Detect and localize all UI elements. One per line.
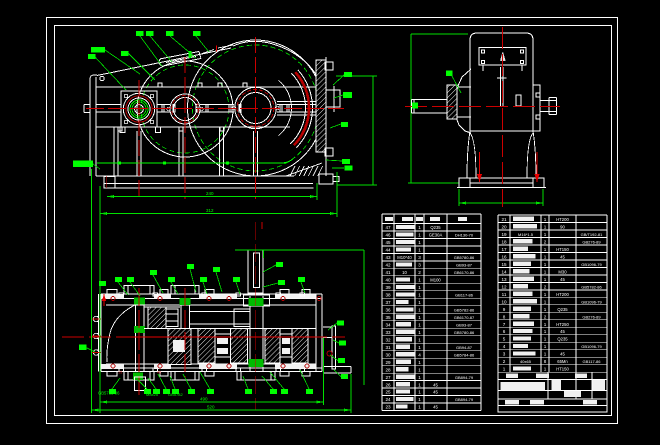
svg-text:45: 45 [560,277,565,282]
svg-text:4: 4 [418,352,421,357]
svg-text:GB5783-86: GB5783-86 [98,391,120,396]
svg-text:1: 1 [503,367,506,372]
svg-text:GB1096-79: GB1096-79 [581,299,602,304]
svg-text:3: 3 [418,263,421,268]
svg-text:45: 45 [560,254,565,259]
svg-text:1: 1 [418,382,421,387]
svg-text:25: 25 [385,390,391,395]
svg-text:HT200: HT200 [556,217,569,222]
svg-text:46: 46 [385,233,391,238]
svg-text:3: 3 [503,352,506,357]
svg-text:GB1096-79: GB1096-79 [581,262,602,267]
svg-text:GB5780-86: GB5780-86 [454,330,475,335]
svg-text:GB894-79: GB894-79 [455,397,474,402]
svg-text:45: 45 [433,390,438,395]
svg-text:GE30A: GE30A [429,233,443,238]
svg-text:10: 10 [501,299,507,304]
svg-text:1: 1 [544,247,547,252]
svg-text:GB5782-86: GB5782-86 [581,284,602,289]
svg-text:14: 14 [501,269,507,274]
svg-text:15: 15 [501,262,507,267]
svg-text:1: 1 [418,397,421,402]
svg-text:1: 1 [418,315,421,320]
svg-text:1: 1 [544,337,547,342]
svg-text:10: 10 [402,270,407,275]
svg-text:HT200: HT200 [556,292,569,297]
svg-text:7: 7 [503,322,506,327]
svg-text:HT150: HT150 [556,367,569,372]
svg-text:1: 1 [418,360,421,365]
svg-text:GB117-86: GB117-86 [583,359,602,364]
svg-text:45: 45 [560,329,565,334]
svg-text:42: 42 [385,263,391,268]
svg-text:30: 30 [385,352,391,357]
svg-text:490: 490 [200,397,208,402]
svg-text:1: 1 [544,217,547,222]
svg-text:36: 36 [385,307,391,312]
svg-text:18: 18 [501,239,507,244]
svg-text:17: 17 [501,247,507,252]
svg-text:1: 1 [418,322,421,327]
svg-text:HT150: HT150 [556,247,569,252]
svg-text:240: 240 [206,191,214,196]
svg-text:1: 1 [418,337,421,342]
svg-text:8: 8 [544,359,547,364]
svg-text:M16*1.5: M16*1.5 [518,232,534,237]
svg-text:13: 13 [501,277,507,282]
svg-text:GB5782: GB5782 [168,392,183,397]
svg-text:44: 44 [385,248,391,253]
svg-text:520: 520 [207,405,215,410]
svg-text:43: 43 [385,255,391,260]
svg-text:1: 1 [544,254,547,259]
svg-text:23: 23 [385,405,391,410]
svg-text:40x65: 40x65 [520,359,532,364]
svg-text:1: 1 [418,390,421,395]
svg-text:GB94-87: GB94-87 [456,345,473,350]
svg-text:2: 2 [544,284,547,289]
svg-text:2: 2 [418,270,421,275]
svg-text:GB1096-79: GB1096-79 [581,344,602,349]
svg-text:1: 1 [418,330,421,335]
svg-text:M30: M30 [558,269,567,274]
svg-text:35: 35 [385,315,391,320]
svg-text:33: 33 [385,330,391,335]
svg-text:34: 34 [385,322,391,327]
svg-text:1: 1 [544,299,547,304]
svg-text:5: 5 [503,337,506,342]
svg-text:32: 32 [385,337,391,342]
svg-text:1: 1 [418,225,421,230]
svg-text:1: 1 [544,307,547,312]
svg-text:M8x25: M8x25 [146,392,159,397]
svg-text:1: 1 [544,277,547,282]
svg-text:45: 45 [433,382,438,387]
svg-text:45: 45 [385,240,391,245]
svg-text:Q235: Q235 [557,337,568,342]
svg-text:11: 11 [502,292,507,297]
svg-text:GB6170-87: GB6170-87 [454,315,475,320]
svg-text:1: 1 [418,233,421,238]
svg-text:1: 1 [418,278,421,283]
svg-text:GB93-87: GB93-87 [456,322,473,327]
svg-text:1: 1 [544,224,547,229]
svg-text:1: 1 [544,352,547,357]
svg-text:6: 6 [503,329,506,334]
svg-text:8: 8 [503,314,506,319]
svg-text:M10*40: M10*40 [397,255,412,260]
svg-text:GB117-86: GB117-86 [455,293,474,298]
svg-text:GB5780-86: GB5780-86 [454,255,475,260]
svg-text:1: 1 [418,375,421,380]
svg-text:45: 45 [560,352,565,357]
svg-text:45: 45 [433,405,438,410]
svg-text:1: 1 [418,300,421,305]
svg-text:1: 1 [418,240,421,245]
svg-text:16: 16 [501,254,507,259]
svg-text:28: 28 [385,367,391,372]
svg-text:GB93-87: GB93-87 [456,263,473,268]
svg-text:GB/T192-81: GB/T192-81 [581,232,604,237]
svg-text:31: 31 [385,345,391,350]
svg-text:1: 1 [418,345,421,350]
svg-text:12: 12 [501,284,507,289]
svg-text:21: 21 [501,217,507,222]
svg-text:26: 26 [385,382,391,387]
svg-text:40: 40 [385,278,391,283]
svg-text:1: 1 [544,367,547,372]
svg-text:24: 24 [385,397,391,402]
svg-text:9: 9 [503,307,506,312]
svg-text:1: 1 [418,367,421,372]
svg-text:20: 20 [501,224,507,229]
svg-text:1: 1 [418,285,421,290]
svg-text:19: 19 [501,232,507,237]
svg-text:1: 1 [418,405,421,410]
svg-text:4: 4 [503,344,506,349]
svg-text:2: 2 [544,314,547,319]
svg-text:Q235: Q235 [557,307,568,312]
svg-text:3: 3 [418,255,421,260]
svg-text:1: 1 [544,262,547,267]
svg-text:GB276-89: GB276-89 [582,239,601,244]
svg-text:GB276-89: GB276-89 [582,314,601,319]
svg-text:2: 2 [544,239,547,244]
svg-text:HT250: HT250 [556,322,569,327]
svg-text:M100: M100 [430,278,441,283]
svg-text:1: 1 [544,322,547,327]
svg-text:GB5782-86: GB5782-86 [454,307,475,312]
svg-text:1: 1 [544,269,547,274]
svg-text:1: 1 [418,307,421,312]
svg-text:15: 15 [118,371,122,375]
svg-text:27: 27 [385,375,391,380]
svg-text:2: 2 [503,359,506,364]
svg-text:39: 39 [385,285,391,290]
svg-text:47: 47 [385,225,391,230]
svg-text:90: 90 [560,224,565,229]
svg-text:312: 312 [206,208,214,213]
svg-text:29: 29 [385,360,391,365]
svg-text:Q235: Q235 [430,225,441,230]
svg-text:GB5784-86: GB5784-86 [454,352,475,357]
svg-text:38: 38 [385,293,391,298]
svg-text:1: 1 [544,292,547,297]
svg-text:45: 45 [157,371,161,375]
svg-text:1: 1 [544,232,547,237]
svg-text:DH130-70: DH130-70 [455,233,474,238]
svg-text:1: 1 [418,248,421,253]
svg-text:1: 1 [544,329,547,334]
svg-text:GB6170-86: GB6170-86 [454,270,475,275]
svg-text:1: 1 [544,344,547,349]
svg-text:65Mn: 65Mn [557,359,568,364]
svg-text:GB894-79: GB894-79 [455,375,474,380]
svg-text:41: 41 [385,270,391,275]
svg-text:1: 1 [418,293,421,298]
svg-text:37: 37 [385,300,391,305]
